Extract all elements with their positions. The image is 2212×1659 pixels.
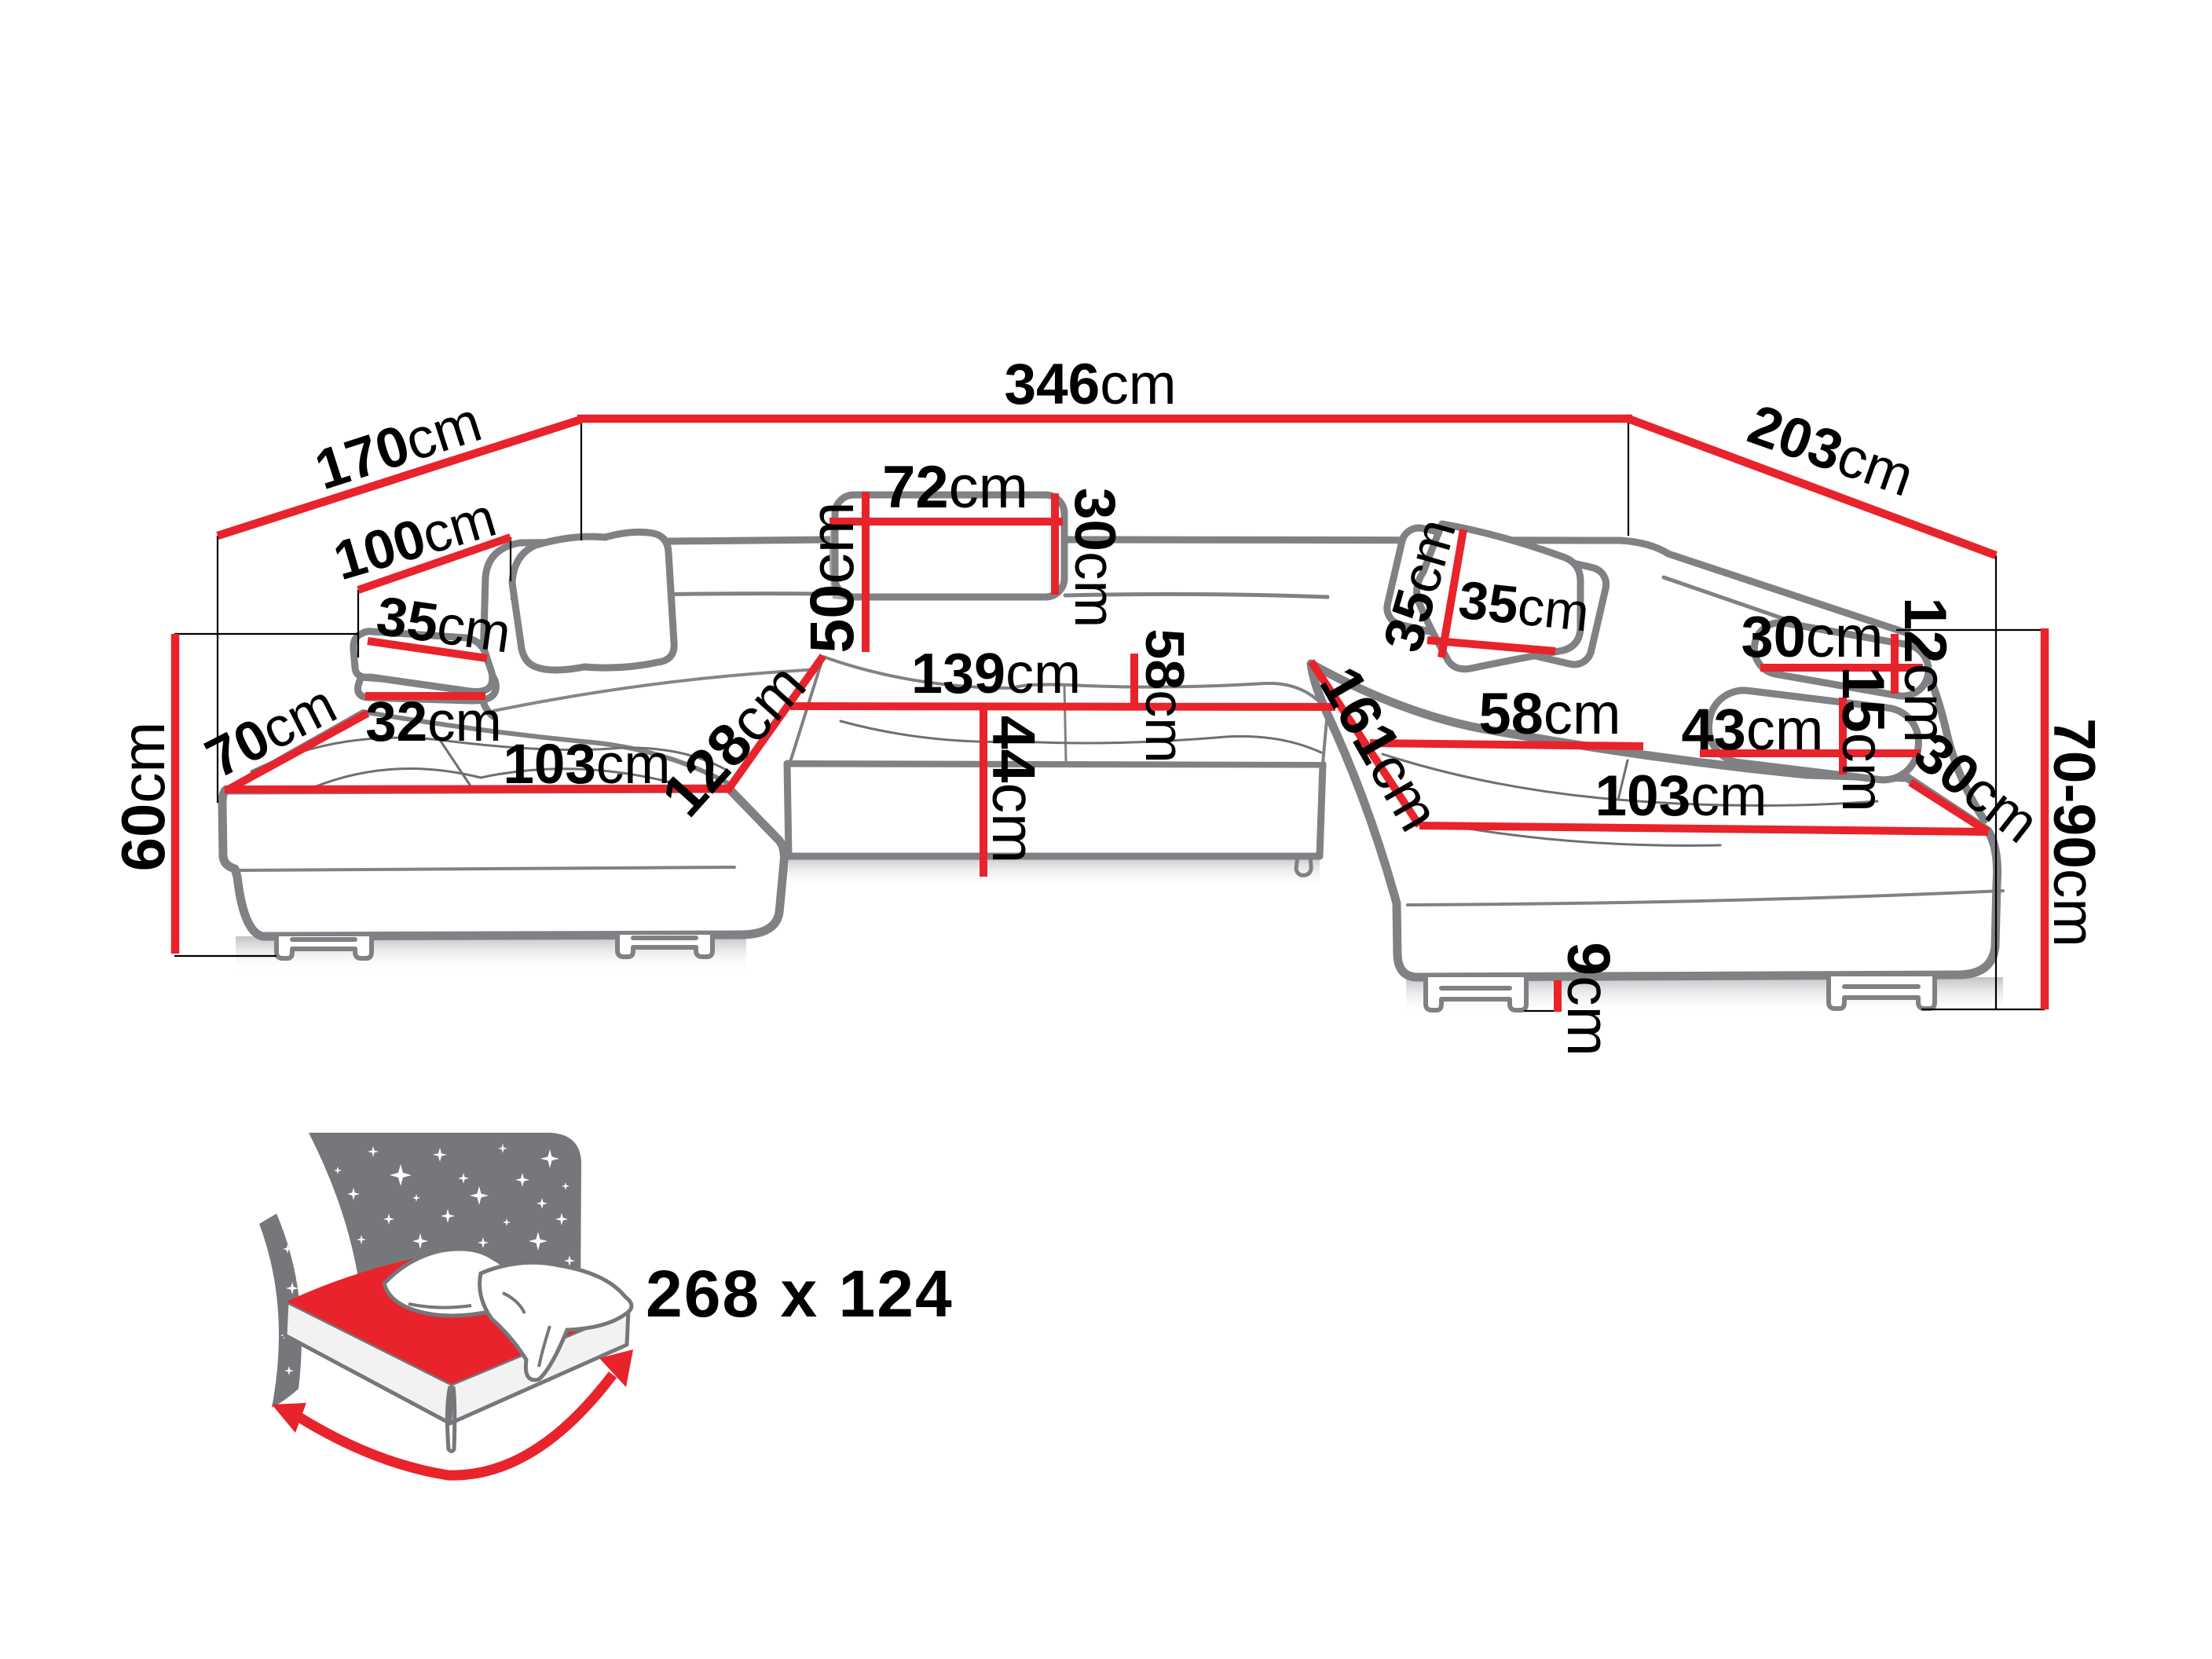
svg-text:30cm: 30cm — [1741, 604, 1884, 669]
svg-text:103cm: 103cm — [1595, 764, 1767, 828]
svg-text:15cm: 15cm — [1830, 666, 1897, 812]
svg-text:103cm: 103cm — [503, 734, 670, 796]
svg-text:9cm: 9cm — [1555, 942, 1622, 1056]
svg-text:30cm: 30cm — [1064, 488, 1127, 628]
svg-text:268 x 124: 268 x 124 — [646, 1257, 954, 1331]
svg-text:43cm: 43cm — [1682, 697, 1824, 762]
svg-text:44cm: 44cm — [980, 716, 1047, 863]
svg-text:50cm: 50cm — [797, 501, 866, 653]
svg-text:346cm: 346cm — [1004, 353, 1176, 416]
svg-text:70-90cm: 70-90cm — [2042, 718, 2108, 947]
svg-text:58cm: 58cm — [1134, 628, 1196, 763]
svg-text:139cm: 139cm — [911, 643, 1081, 705]
svg-text:72cm: 72cm — [882, 454, 1028, 521]
svg-text:12cm: 12cm — [1892, 597, 1959, 743]
svg-text:60cm: 60cm — [108, 722, 178, 872]
svg-text:32cm: 32cm — [365, 691, 502, 753]
svg-text:58cm: 58cm — [1479, 681, 1621, 746]
